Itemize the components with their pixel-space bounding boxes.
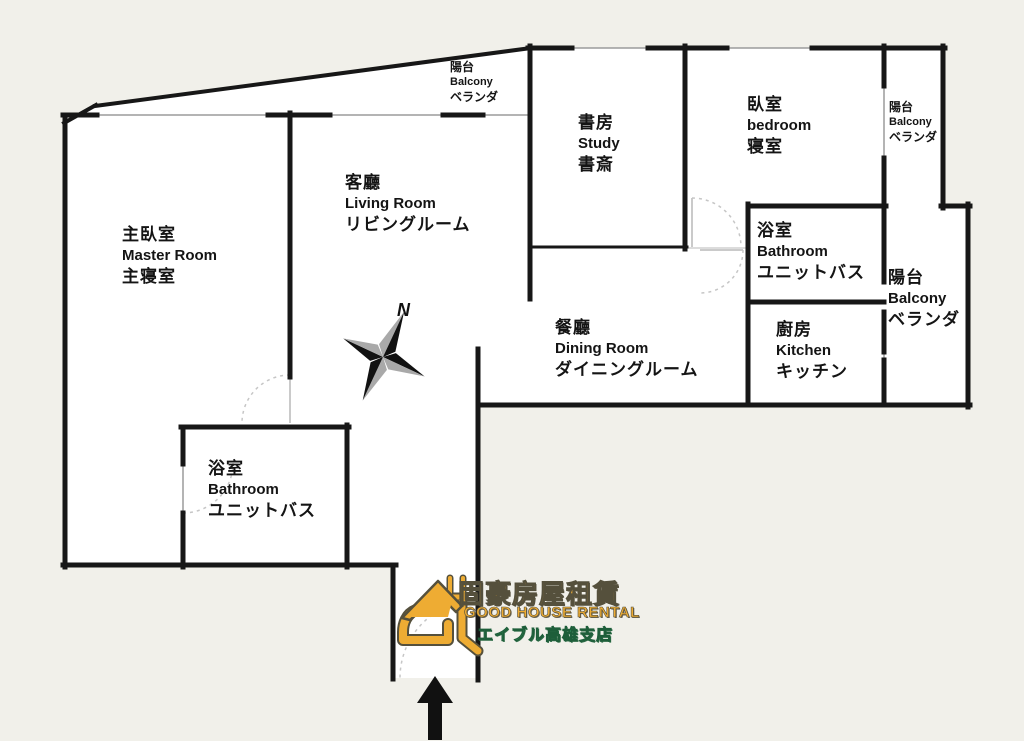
label-bathroom-upper: 浴室 Bathroom ユニットバス [757,220,865,283]
label-study: 書房 Study 書斎 [578,112,620,175]
entrance-arrow-icon [417,676,453,740]
label-bathroom-lower: 浴室 Bathroom ユニットバス [208,458,316,521]
label-balcony-right-upper: 陽台 Balcony ベランダ [889,100,937,145]
label-dining-room: 餐廳 Dining Room ダイニングルーム [555,317,699,380]
logo-branch-name-ja: エイブル高雄支店 [477,621,613,645]
logo-company-name-en: GOOD HOUSE RENTAL [464,604,640,621]
label-balcony-right-lower: 陽台 Balcony ベランダ [888,267,960,330]
label-balcony-top: 陽台 Balcony ベランダ [450,60,498,105]
label-living-room: 客廳 Living Room リビングルーム [345,172,471,235]
label-kitchen: 廚房 Kitchen キッチン [776,319,848,382]
floorplan: N 主臥室 Master Room 主寝室 [0,0,1024,741]
label-bedroom: 臥室 bedroom 寝室 [747,94,811,157]
compass-north-label: N [397,300,411,320]
label-master-room: 主臥室 Master Room 主寝室 [122,224,217,287]
